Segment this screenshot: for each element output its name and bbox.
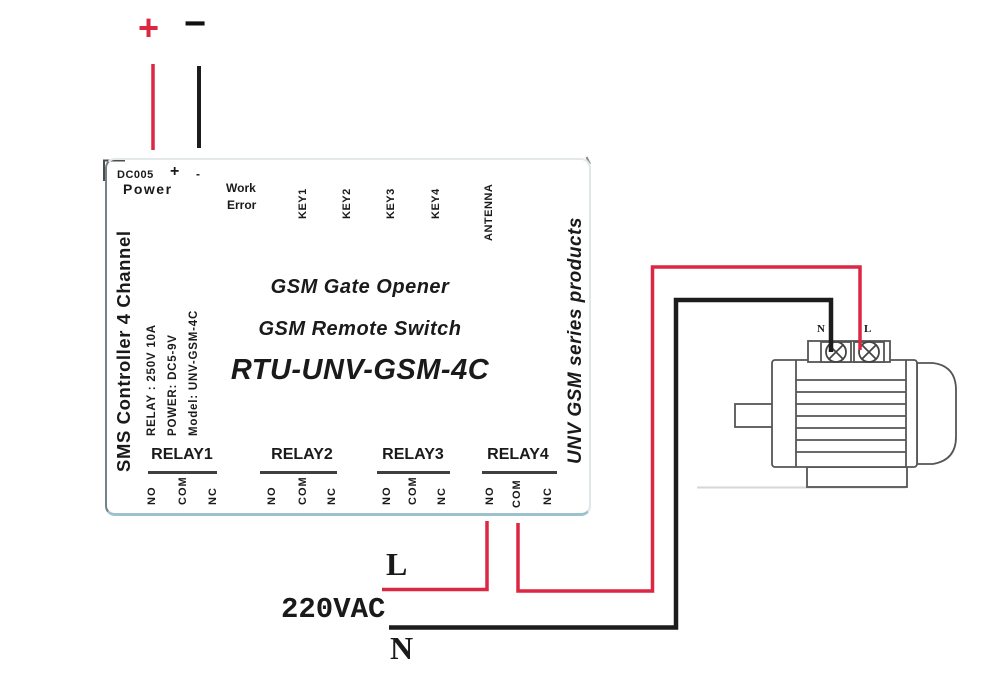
board-right-title: UNV GSM series products	[566, 217, 585, 464]
relay1-label: RELAY1	[132, 447, 232, 463]
board-title-line2: GSM Remote Switch	[180, 319, 540, 339]
board-model-text: RTU-UNV-GSM-4C	[180, 356, 540, 385]
mains-neutral-label: N	[390, 632, 413, 664]
motor-body	[772, 360, 917, 467]
relay3-terminal-no: NO	[382, 487, 393, 506]
relay1-underline	[148, 471, 217, 474]
relay1-terminal-no: NO	[147, 487, 158, 506]
relay4-terminal-no: NO	[485, 487, 496, 506]
relay3-terminal-com: COM	[408, 476, 419, 505]
relay3-label: RELAY3	[363, 447, 463, 463]
key2-label: KEY2	[342, 188, 353, 219]
dc005-label: DC005	[117, 170, 154, 181]
motor-shaft	[735, 404, 773, 427]
mains-voltage-label: 220VAC	[281, 595, 385, 624]
spec-relay-rating: RELAY : 250V 10A	[147, 324, 159, 436]
motor-terminal-l-label: L	[864, 324, 871, 335]
work-led-label: Work	[226, 182, 256, 194]
motor-drawing	[735, 341, 956, 487]
key3-label: KEY3	[386, 188, 397, 219]
relay1-terminal-nc: NC	[208, 487, 219, 505]
antenna-label: ANTENNA	[484, 184, 495, 241]
relay1-terminal-com: COM	[178, 476, 189, 505]
relay2-terminal-no: NO	[267, 487, 278, 506]
mains-live-label: L	[386, 548, 407, 580]
error-led-label: Error	[227, 199, 256, 211]
key4-label: KEY4	[431, 188, 442, 219]
dc-negative-symbol: −	[184, 5, 206, 43]
wiring-diagram: + − DC005 + - Power Work Error KEY1 KEY2…	[0, 0, 1000, 694]
dc005-plus-mark: +	[170, 164, 179, 180]
relay4-terminal-com: COM	[512, 479, 523, 508]
relay3-underline	[377, 471, 450, 474]
motor-end-cap	[917, 363, 956, 464]
relay2-underline	[260, 471, 337, 474]
relay4-terminal-nc: NC	[543, 487, 554, 505]
relay3-terminal-nc: NC	[437, 487, 448, 505]
motor-terminal-n-label: N	[817, 324, 825, 335]
relay2-terminal-com: COM	[298, 476, 309, 505]
relay4-underline	[482, 471, 557, 474]
motor-base	[807, 467, 907, 487]
power-label: Power	[123, 182, 173, 196]
relay2-label: RELAY2	[252, 447, 352, 463]
spec-power-rating: POWER: DC5-9V	[168, 334, 180, 436]
board-left-title: SMS Controller 4 Channel	[115, 230, 134, 472]
key1-label: KEY1	[298, 188, 309, 219]
dc-positive-symbol: +	[138, 10, 159, 46]
relay2-terminal-nc: NC	[327, 487, 338, 505]
relay4-label: RELAY4	[468, 447, 568, 463]
board-title-line1: GSM Gate Opener	[180, 277, 540, 297]
dc005-minus-mark: -	[196, 168, 200, 180]
